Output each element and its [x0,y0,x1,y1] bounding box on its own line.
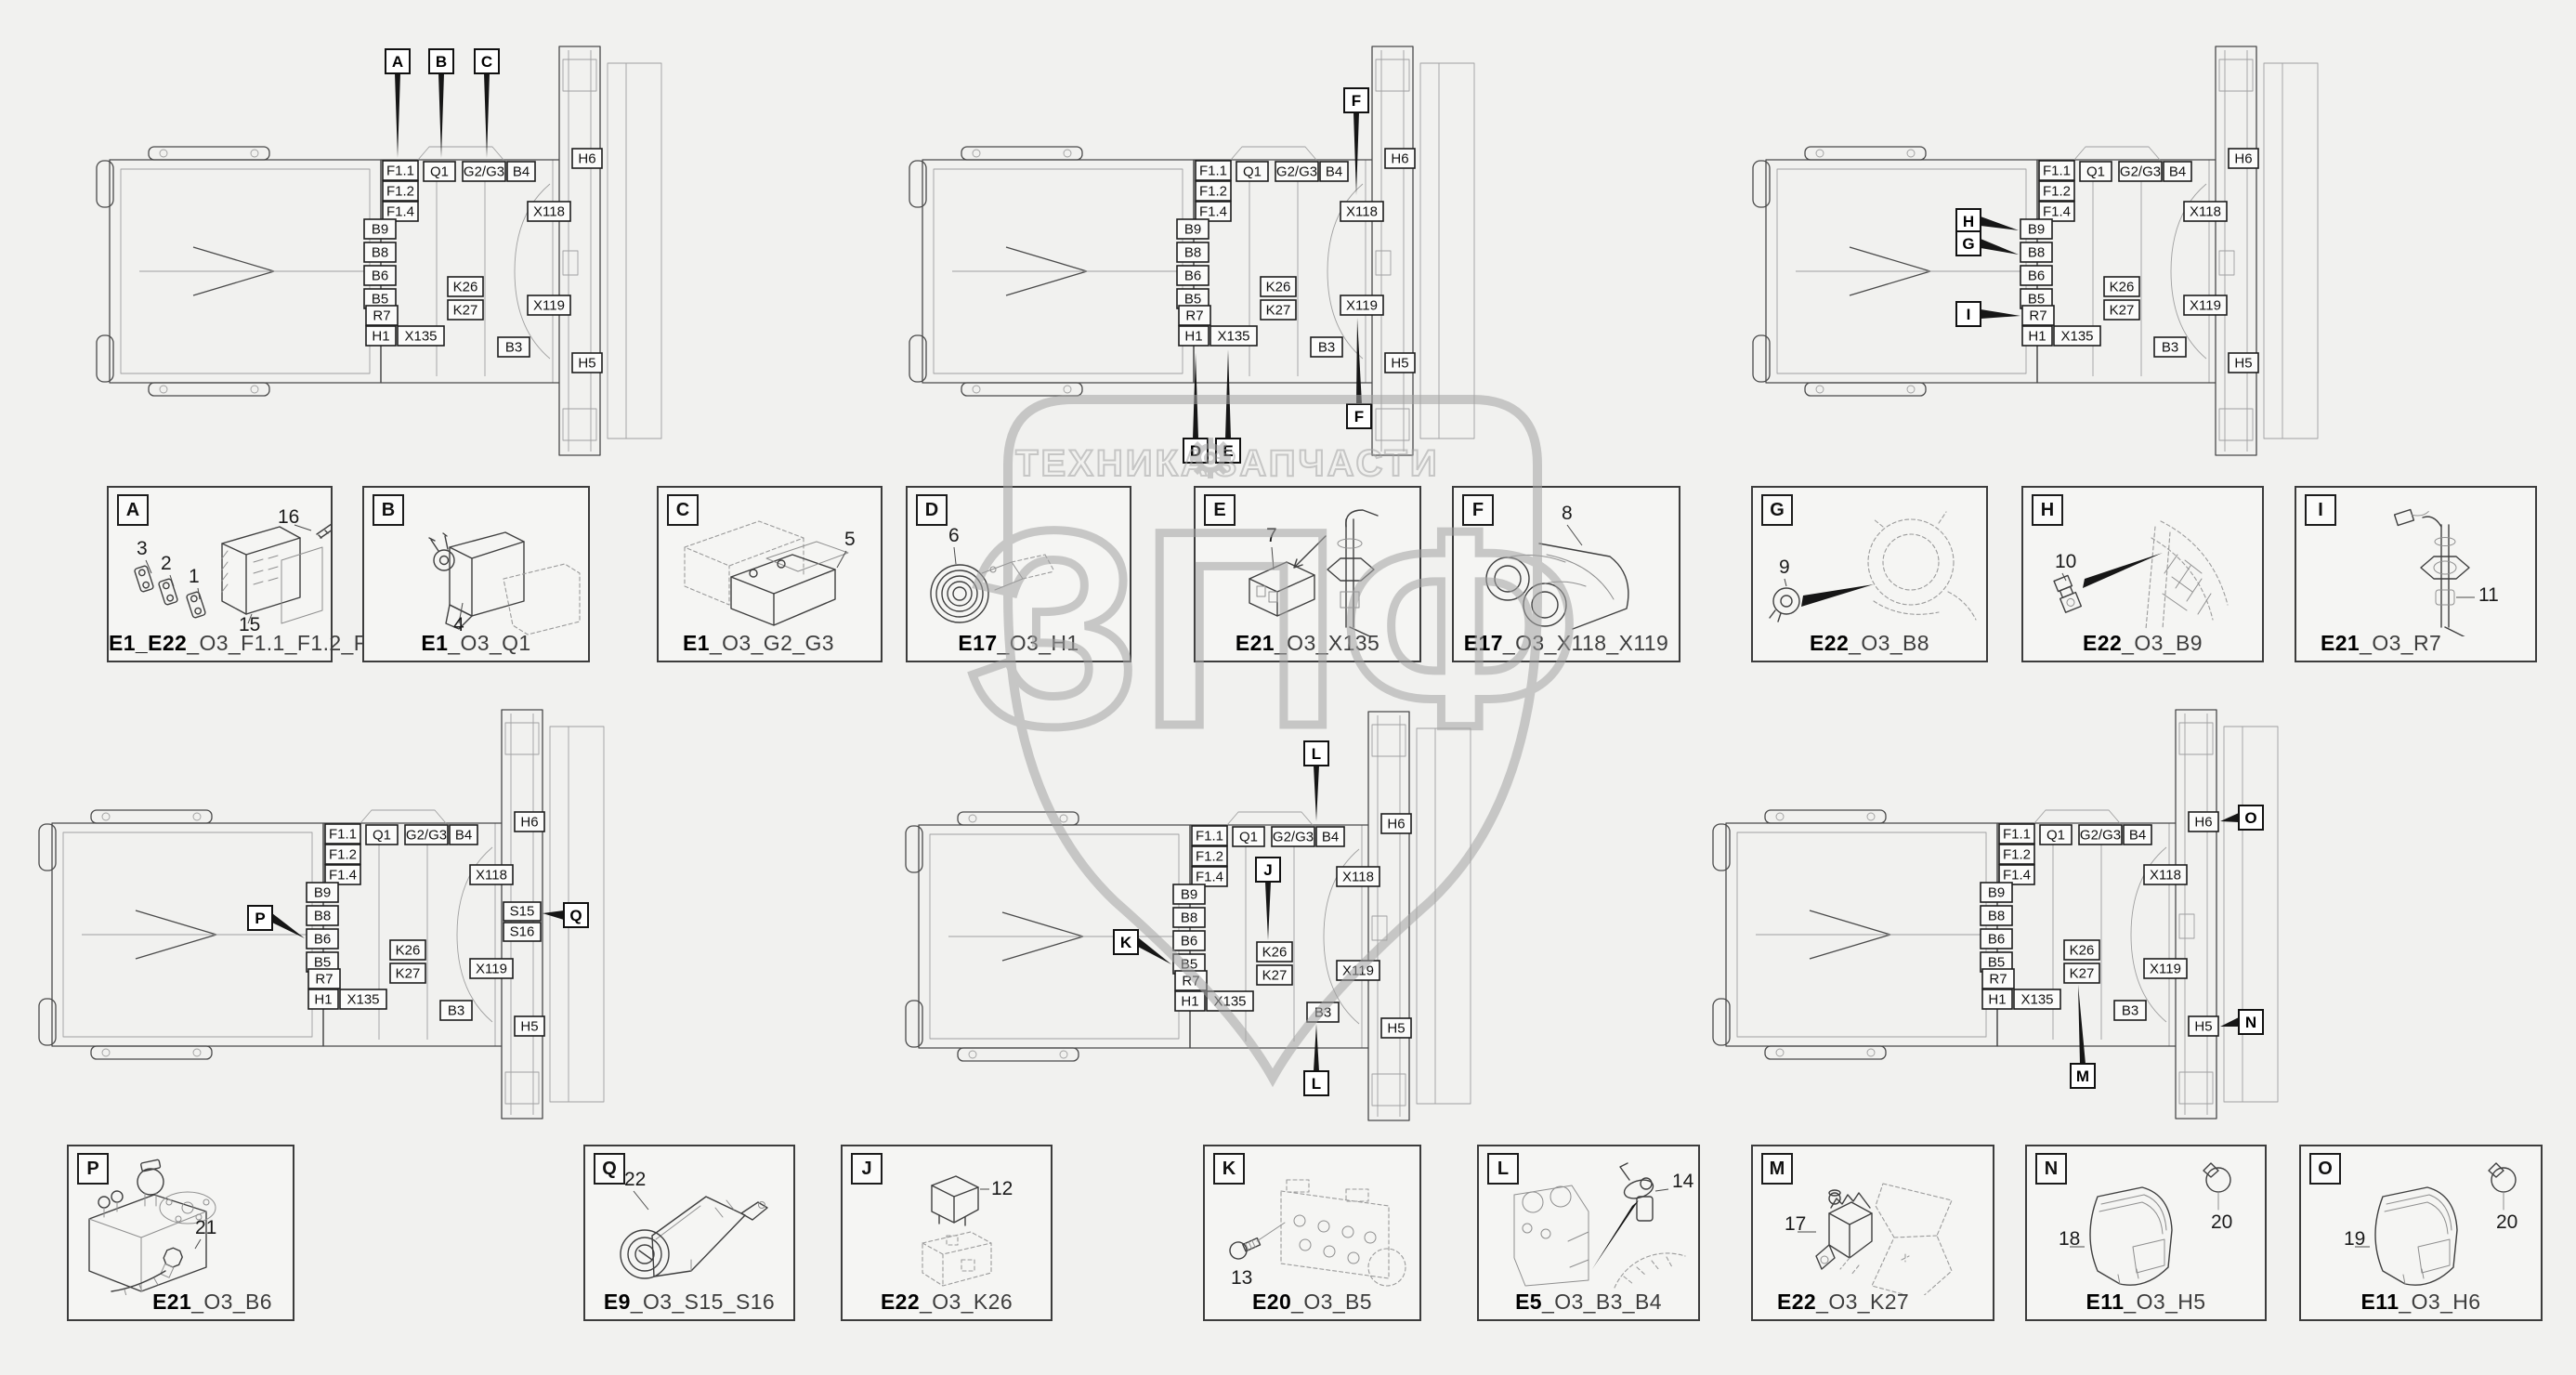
connector-label-F1.4: F1.4 [1196,202,1231,221]
connector-label-X118: X118 [1340,202,1383,221]
connector-label-F1.1: F1.1 [1192,826,1227,845]
detail-box-A: A3211516E1_E22_O3_F1.1_F1.2_F1.4 [107,486,333,662]
part-code-caption: E5_O3_B3_B4 [1479,1290,1698,1315]
svg-text:G2/G3: G2/G3 [1276,164,1317,180]
svg-text:X135: X135 [404,329,437,345]
svg-text:B3: B3 [1314,1005,1331,1021]
svg-text:H1: H1 [1184,329,1202,345]
svg-text:B9: B9 [2028,222,2045,238]
svg-text:X135: X135 [1217,329,1249,345]
callout-letter: I [1967,306,1971,323]
connector-label-H5: H5 [2189,1016,2218,1036]
svg-text:G2/G3: G2/G3 [464,164,504,180]
connector-label-H1: H1 [308,989,338,1009]
connector-label-F1.1: F1.1 [1196,161,1231,180]
connector-label-G2/G3: G2/G3 [2119,162,2162,181]
svg-text:B5: B5 [1988,955,2005,971]
connector-label-H6: H6 [1381,814,1411,833]
callout-letter: E [1223,442,1233,460]
svg-text:H1: H1 [2028,329,2046,345]
part-code-caption: E1_O3_G2_G3 [659,631,881,656]
detail-box-Q: Q22E9_O3_S15_S16 [583,1145,795,1321]
connector-label-R7: R7 [2022,306,2054,325]
connector-label-H6: H6 [2229,149,2258,168]
svg-text:F1.4: F1.4 [386,204,414,220]
connector-label-X118: X118 [528,202,570,221]
part-sketch: 9 [1753,490,1986,636]
connector-label-S15: S15 [503,902,541,921]
connector-label-Q1: Q1 [424,162,455,181]
connector-label-K26: K26 [2064,940,2099,960]
connector-label-F1.4: F1.4 [325,865,360,884]
chassis-diagram-top-left: F1.1F1.2F1.4Q1G2/G3B4H6X118B9B8B6B5K26K2… [84,19,678,483]
svg-text:B5: B5 [1184,292,1201,308]
connector-label-B8: B8 [364,242,396,262]
callout-P: P [248,906,305,938]
connector-label-H1: H1 [1179,326,1209,346]
svg-text:X118: X118 [1342,870,1374,885]
connector-label-F1.2: F1.2 [1999,845,2034,864]
connector-label-Q1: Q1 [2080,162,2112,181]
connector-label-X135: X135 [398,326,444,346]
svg-text:F1.2: F1.2 [2003,847,2031,863]
svg-text:H1: H1 [314,992,332,1008]
svg-text:F1.4: F1.4 [329,868,357,884]
callout-letter: K [1120,934,1132,951]
connector-label-B3: B3 [2114,1001,2146,1020]
svg-text:B9: B9 [1181,887,1197,903]
connector-label-K26: K26 [390,940,425,960]
connector-label-B3: B3 [1311,337,1342,357]
connector-label-B8: B8 [1173,908,1205,927]
svg-text:F1.1: F1.1 [1199,164,1227,179]
svg-text:B4: B4 [1326,164,1342,180]
svg-text:R7: R7 [1185,308,1203,324]
svg-text:H1: H1 [1988,992,2006,1008]
svg-text:B6: B6 [2028,268,2045,284]
svg-text:S15: S15 [510,904,535,920]
callout-letter: C [481,53,492,71]
connector-label-Q1: Q1 [1233,827,1264,846]
connector-label-H6: H6 [1385,149,1415,168]
callout-D: D [1183,353,1208,463]
svg-text:K27: K27 [1262,968,1288,984]
connector-label-R7: R7 [1175,971,1207,990]
svg-text:B4: B4 [2129,828,2146,844]
callout-F: F [1347,318,1371,428]
connector-label-B4: B4 [450,825,477,845]
svg-text:B8: B8 [1988,909,2005,924]
detail-box-K: K13E20_O3_B5 [1203,1145,1421,1321]
part-code-caption: E11_O3_H5 [2027,1290,2265,1315]
svg-text:R7: R7 [1989,972,2007,988]
detail-box-F: F8E17_O3_X118_X119 [1452,486,1680,662]
connector-label-F1.4: F1.4 [1999,865,2034,884]
detail-box-N: N1820E11_O3_H5 [2025,1145,2267,1321]
svg-text:Q1: Q1 [2086,164,2105,180]
svg-text:B5: B5 [2028,292,2045,308]
svg-text:B3: B3 [2122,1003,2138,1019]
svg-text:H5: H5 [578,356,595,372]
svg-text:F1.1: F1.1 [2003,827,2031,843]
svg-text:K27: K27 [453,303,478,319]
svg-text:X119: X119 [533,298,565,314]
connector-label-K27: K27 [448,300,483,320]
svg-text:R7: R7 [2029,308,2046,324]
svg-text:X118: X118 [1346,204,1378,220]
part-code-caption: E1_O3_Q1 [364,631,588,656]
svg-text:B4: B4 [513,164,530,180]
detail-box-H: H10E22_O3_B9 [2021,486,2264,662]
svg-text:H1: H1 [372,329,389,345]
svg-text:X119: X119 [1342,963,1374,979]
svg-text:R7: R7 [1182,974,1199,989]
part-sketch: 12 [843,1148,1051,1295]
callout-letter: P [255,910,265,927]
svg-text:H6: H6 [1391,151,1408,167]
svg-text:X135: X135 [2020,992,2053,1008]
connector-label-K27: K27 [1257,965,1292,985]
connector-label-B6: B6 [307,929,338,949]
connector-label-B3: B3 [1307,1002,1339,1022]
part-number: 11 [2478,584,2499,606]
detail-box-D: D6E17_O3_H1 [906,486,1131,662]
connector-label-X119: X119 [2184,295,2227,315]
connector-label-F1.1: F1.1 [2039,161,2074,180]
svg-text:B3: B3 [1318,340,1335,356]
callout-A: A [386,49,410,158]
svg-text:F1.4: F1.4 [1199,204,1227,220]
connector-label-B9: B9 [1177,219,1209,239]
part-code-caption: E17_O3_H1 [908,631,1130,656]
svg-text:B3: B3 [2162,340,2178,356]
svg-text:F1.1: F1.1 [329,827,357,843]
connector-label-H5: H5 [1385,353,1415,373]
detail-box-G: G9E22_O3_B8 [1751,486,1988,662]
connector-label-K27: K27 [2064,963,2099,983]
callout-letter: G [1962,235,1974,253]
svg-text:B6: B6 [1184,268,1201,284]
connector-label-F1.1: F1.1 [325,824,360,844]
connector-label-B4: B4 [2124,825,2151,845]
connector-label-X135: X135 [340,989,386,1009]
connector-label-X135: X135 [2054,326,2100,346]
svg-text:X119: X119 [476,962,507,977]
part-sketch: 3211516 [109,490,331,636]
svg-text:X135: X135 [1213,994,1246,1010]
connector-label-B8: B8 [307,906,338,925]
callout-letter: L [1312,1075,1321,1093]
callout-L: L [1304,1024,1328,1095]
connector-label-F1.1: F1.1 [1999,824,2034,844]
part-sketch: 1820 [2027,1148,2265,1295]
chassis-diagram-top-right: F1.1F1.2F1.4Q1G2/G3B4H6X118B9B8B6B5K26K2… [1740,19,2334,483]
connector-label-B4: B4 [1316,827,1344,846]
connector-label-B9: B9 [2020,219,2052,239]
connector-label-B6: B6 [1981,929,2012,949]
svg-text:K26: K26 [453,280,478,295]
svg-text:B3: B3 [505,340,522,356]
connector-label-H5: H5 [572,353,602,373]
parts-catalog-page: { "palette": { "background": "#f1f1ef", … [0,0,2576,1375]
connector-label-K27: K27 [1261,300,1296,320]
connector-label-F1.4: F1.4 [2039,202,2074,221]
connector-label-X118: X118 [2144,865,2187,884]
connector-label-H1: H1 [2022,326,2052,346]
callout-H: H [1956,209,2019,233]
connector-label-K26: K26 [1261,277,1296,296]
connector-label-X118: X118 [2184,202,2227,221]
svg-text:B5: B5 [372,292,388,308]
svg-text:B8: B8 [2028,245,2045,261]
svg-text:B4: B4 [455,828,472,844]
svg-text:F1.1: F1.1 [1196,829,1223,845]
svg-text:G2/G3: G2/G3 [2120,164,2161,180]
connector-label-F1.2: F1.2 [1192,846,1227,866]
connector-label-H5: H5 [2229,353,2258,373]
connector-label-X119: X119 [1340,295,1383,315]
part-number: 6 [948,525,960,546]
svg-text:K26: K26 [1266,280,1291,295]
svg-text:F1.2: F1.2 [329,847,357,863]
connector-label-B3: B3 [498,337,530,357]
svg-text:K27: K27 [396,966,421,982]
part-number: 3 [137,538,148,559]
svg-text:G2/G3: G2/G3 [406,828,447,844]
connector-label-H6: H6 [2189,812,2218,832]
svg-text:H5: H5 [520,1019,538,1035]
svg-text:B3: B3 [448,1003,464,1019]
connector-label-B4: B4 [2164,162,2191,181]
part-sketch: 10 [2023,490,2262,636]
part-number: 14 [1672,1171,1694,1192]
connector-label-B6: B6 [1177,266,1209,285]
svg-text:F1.2: F1.2 [2043,184,2071,200]
chassis-diagram-bottom-right: F1.1F1.2F1.4Q1G2/G3B4H6X118B9B8B6B5K26K2… [1700,682,2295,1146]
part-number: 18 [2059,1228,2080,1250]
connector-label-H1: H1 [1175,991,1205,1011]
svg-text:X119: X119 [2190,298,2221,314]
part-number: 21 [195,1217,216,1238]
callout-letter: H [1963,213,1974,230]
svg-text:X118: X118 [533,204,565,220]
connector-label-K27: K27 [390,963,425,983]
svg-text:R7: R7 [315,972,333,988]
svg-text:X135: X135 [2060,329,2093,345]
svg-text:H6: H6 [578,151,595,167]
connector-label-G2/G3: G2/G3 [1272,827,1314,846]
part-sketch: 21 [69,1148,293,1295]
svg-text:B8: B8 [314,909,331,924]
part-number: 1 [189,566,200,587]
svg-text:X118: X118 [2150,868,2181,884]
svg-text:X119: X119 [2150,962,2181,977]
callout-C: C [475,49,499,158]
part-sketch: 11 [2296,490,2535,636]
part-code-caption: E22_O3_K26 [843,1290,1051,1315]
callout-O: O [2220,805,2263,830]
callout-letter: D [1190,442,1201,460]
chassis-diagram-top-middle: F1.1F1.2F1.4Q1G2/G3B4H6X118B9B8B6B5K26K2… [896,19,1491,483]
connector-label-F1.4: F1.4 [383,202,418,221]
detail-box-I: I11E21_O3_R7 [2295,486,2537,662]
connector-label-B4: B4 [1320,162,1348,181]
svg-text:X118: X118 [476,868,507,884]
svg-text:K27: K27 [1266,303,1291,319]
svg-text:K26: K26 [2070,943,2095,959]
part-sketch: 14 [1479,1148,1698,1295]
svg-text:B5: B5 [1181,957,1197,973]
part-code-caption: E20_O3_B5 [1205,1290,1419,1315]
callout-I: I [1956,302,2020,326]
svg-text:H6: H6 [2194,815,2212,831]
chassis-diagram-bottom-left: F1.1F1.2F1.4Q1G2/G3B4H6X118B9B8B6B5K26K2… [26,682,621,1146]
callout-letter: F [1352,92,1361,110]
detail-box-C: C5E1_O3_G2_G3 [657,486,883,662]
callout-M: M [2071,985,2095,1088]
part-sketch: 13 [1205,1148,1419,1295]
connector-label-B3: B3 [440,1001,472,1020]
svg-text:G2/G3: G2/G3 [2080,828,2121,844]
part-code-caption: E21_O3_B6 [69,1290,293,1315]
svg-text:H5: H5 [2234,356,2252,372]
part-number: 16 [278,506,299,528]
callout-E: E [1216,349,1240,463]
detail-box-M: M17E22_O3_K27 [1751,1145,1994,1321]
chassis-diagram-bottom-middle: F1.1F1.2F1.4Q1G2/G3B4H6X118B9B8B6B5K26K2… [893,684,1487,1148]
part-sketch: 22 [585,1148,793,1295]
connector-label-R7: R7 [1179,306,1210,325]
part-number: 2 [161,553,172,574]
connector-label-X135: X135 [2014,989,2060,1009]
svg-text:Q1: Q1 [1239,830,1258,845]
svg-text:K26: K26 [1262,945,1288,961]
part-sketch: 5 [659,490,881,636]
connector-label-G2/G3: G2/G3 [405,825,448,845]
connector-label-H5: H5 [515,1016,544,1036]
connector-label-K27: K27 [2104,300,2139,320]
connector-label-X119: X119 [2144,959,2187,978]
connector-label-B8: B8 [1177,242,1209,262]
connector-label-R7: R7 [1982,969,2014,989]
part-number: 7 [1266,525,1277,546]
part-sketch: 1920 [2301,1148,2541,1295]
callout-G: G [1956,231,2019,255]
callout-letter: L [1312,745,1321,763]
svg-text:B5: B5 [314,955,331,971]
connector-label-B9: B9 [364,219,396,239]
detail-box-L: L14E5_O3_B3_B4 [1477,1145,1700,1321]
part-code-caption: E22_O3_K27 [1753,1290,1993,1315]
part-number: 19 [2344,1228,2365,1250]
connector-label-H1: H1 [1982,989,2012,1009]
part-code-caption: E21_O3_X135 [1196,631,1419,656]
connector-label-B3: B3 [2154,337,2186,357]
part-sketch: 8 [1454,490,1679,636]
svg-text:K27: K27 [2070,966,2095,982]
part-code-caption: E22_O3_B8 [1753,631,1986,656]
connector-label-X119: X119 [470,959,513,978]
connector-label-X118: X118 [470,865,513,884]
svg-text:B6: B6 [372,268,388,284]
connector-label-S16: S16 [503,923,541,941]
part-number: 10 [2055,551,2076,572]
part-code-caption: E11_O3_H6 [2301,1290,2541,1315]
connector-label-B6: B6 [1173,931,1205,950]
callout-letter: Q [569,907,582,924]
connector-label-Q1: Q1 [1236,162,1268,181]
part-code-caption: E1_E22_O3_F1.1_F1.2_F1.4 [109,631,331,656]
connector-label-B6: B6 [364,266,396,285]
svg-text:F1.4: F1.4 [2003,868,2031,884]
part-sketch: 6 [908,490,1130,636]
connector-label-F1.2: F1.2 [383,181,418,201]
svg-text:K26: K26 [2110,280,2135,295]
svg-text:B4: B4 [1322,830,1339,845]
callout-letter: M [2076,1067,2089,1085]
svg-text:B8: B8 [372,245,388,261]
svg-text:S16: S16 [510,924,535,940]
connector-label-F1.1: F1.1 [383,161,418,180]
connector-label-B9: B9 [1173,884,1205,904]
svg-text:K27: K27 [2110,303,2135,319]
svg-text:B4: B4 [2169,164,2186,180]
part-code-caption: E22_O3_B9 [2023,631,2262,656]
svg-text:B9: B9 [372,222,388,238]
svg-text:B8: B8 [1184,245,1201,261]
svg-text:H6: H6 [520,815,538,831]
callout-letter: B [436,53,447,71]
connector-label-Q1: Q1 [366,825,398,845]
svg-text:B6: B6 [1988,932,2005,948]
connector-label-X135: X135 [1210,326,1257,346]
svg-text:Q1: Q1 [430,164,449,180]
connector-label-F1.2: F1.2 [2039,181,2074,201]
svg-text:B9: B9 [314,885,331,901]
callout-Q: Q [543,903,588,927]
svg-text:H6: H6 [1387,817,1405,832]
callout-J: J [1256,858,1280,940]
svg-text:X118: X118 [2190,204,2221,220]
svg-text:H5: H5 [1387,1021,1405,1037]
connector-label-G2/G3: G2/G3 [2079,825,2122,845]
callout-B: B [429,49,453,158]
connector-label-X135: X135 [1207,991,1253,1011]
connector-label-G2/G3: G2/G3 [463,162,505,181]
part-number: 9 [1779,557,1790,578]
part-sketch: 7 [1196,490,1419,636]
connector-label-Q1: Q1 [2040,825,2072,845]
callout-K: K [1114,930,1171,964]
svg-text:B9: B9 [1988,885,2005,901]
connector-label-X119: X119 [528,295,570,315]
detail-box-J: J12E22_O3_K26 [841,1145,1053,1321]
svg-text:Q1: Q1 [373,828,391,844]
part-sketch: 4 [364,490,588,636]
connector-label-K26: K26 [448,277,483,296]
connector-label-F1.4: F1.4 [1192,867,1227,886]
connector-label-F1.2: F1.2 [1196,181,1231,201]
svg-text:X135: X135 [347,992,379,1008]
connector-label-H6: H6 [572,149,602,168]
svg-text:G2/G3: G2/G3 [1273,830,1314,845]
svg-text:F1.2: F1.2 [1196,849,1223,865]
part-number: 5 [844,529,856,550]
part-number: 20 [2211,1211,2232,1233]
part-sketch: 17 [1753,1148,1993,1295]
part-code-caption: E9_O3_S15_S16 [585,1290,793,1315]
detail-box-E: E7E21_O3_X135 [1194,486,1421,662]
